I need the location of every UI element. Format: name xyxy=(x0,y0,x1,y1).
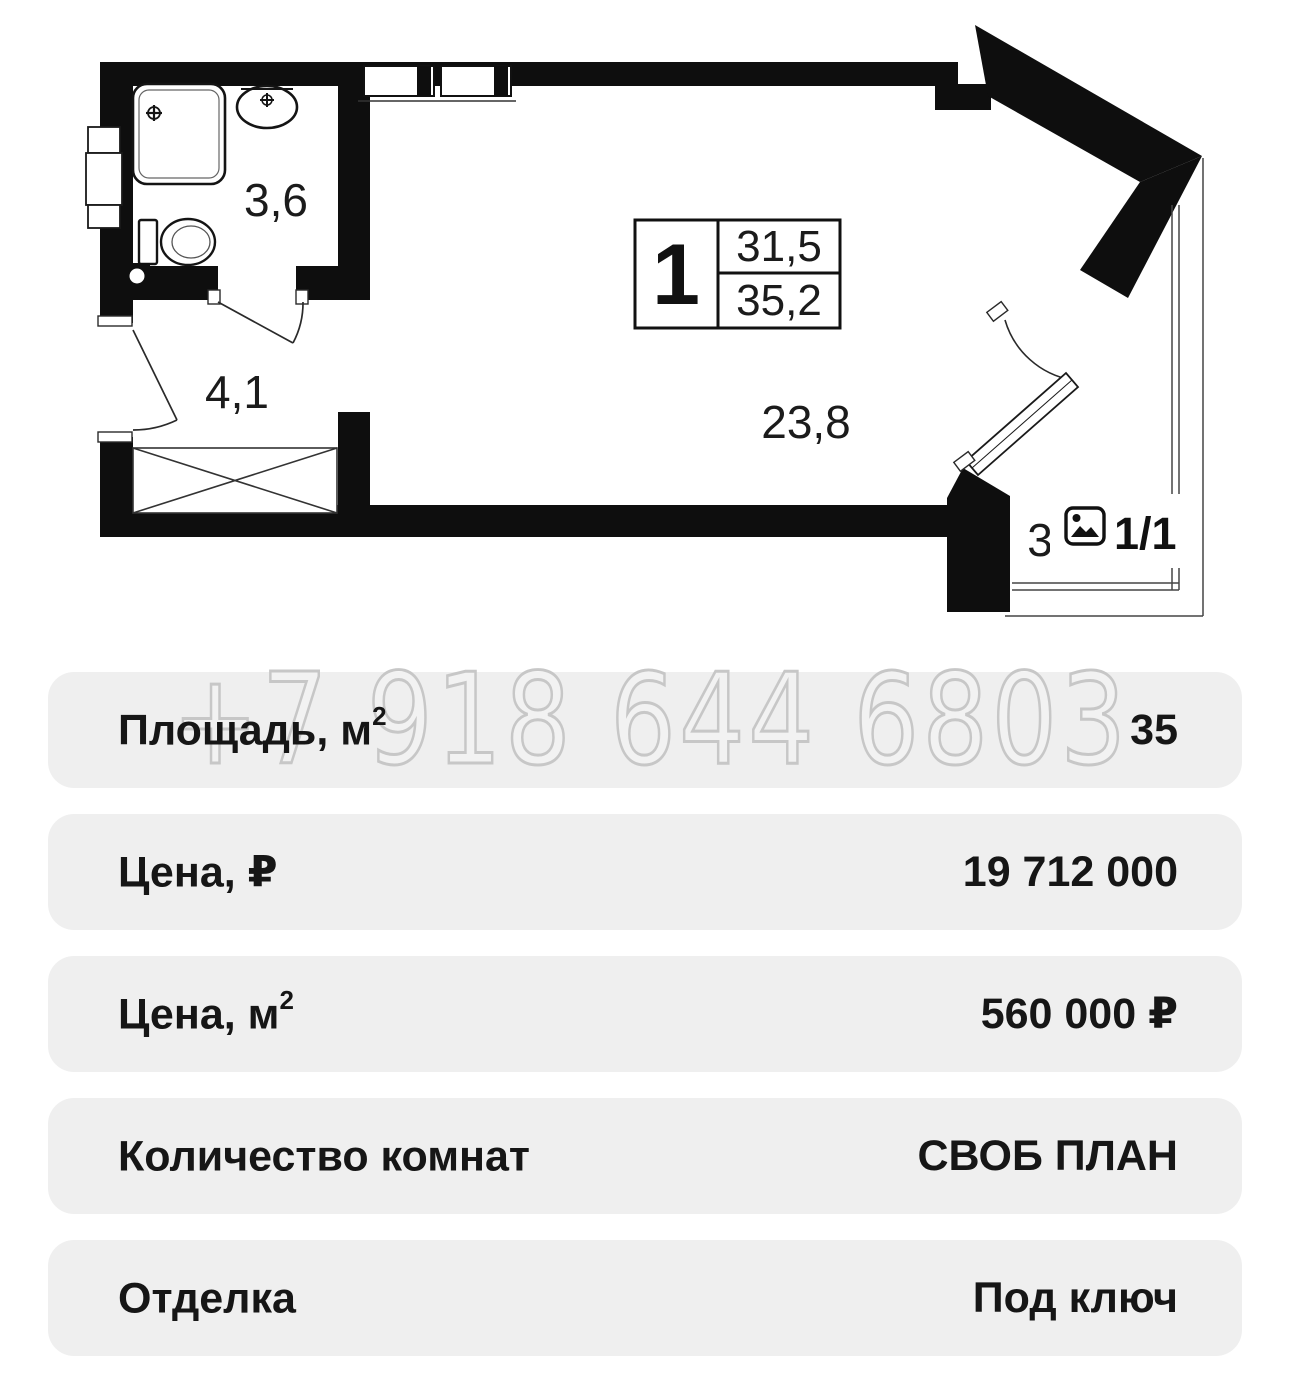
superscript: 2 xyxy=(372,701,386,731)
balcony-door xyxy=(954,302,1078,475)
floor-plan-drawing: 3,6 4,1 23,8 3 1 31,5 35,2 1/1 xyxy=(0,0,1290,655)
superscript: 2 xyxy=(279,985,293,1015)
legend-total-area: 35,2 xyxy=(736,276,822,325)
living-area-label: 23,8 xyxy=(761,396,851,448)
listing-card: 3,6 4,1 23,8 3 1 31,5 35,2 1/1 +7 918 64 xyxy=(0,0,1290,1376)
spec-row-price-per-m2: Цена, м2 560 000 ₽ xyxy=(48,956,1242,1072)
row-value: 35 xyxy=(1130,706,1178,755)
row-label: Площадь, м2 xyxy=(118,705,387,755)
row-value: 560 000 ₽ xyxy=(981,989,1178,1039)
legend-living-area: 31,5 xyxy=(736,222,822,271)
photo-counter-badge[interactable]: 1/1 xyxy=(1050,494,1202,568)
row-label: Цена, ₽ xyxy=(118,847,278,897)
row-value: Под ключ xyxy=(973,1274,1178,1323)
spec-row-finishing: Отделка Под ключ xyxy=(48,1240,1242,1356)
row-label: Цена, м2 xyxy=(118,989,294,1039)
floor-drain-icon xyxy=(124,263,150,289)
spec-row-price: Цена, ₽ 19 712 000 xyxy=(48,814,1242,930)
legend-rooms-count: 1 xyxy=(652,227,700,323)
utility-shaft xyxy=(86,127,122,228)
hallway-area-label: 4,1 xyxy=(205,366,269,418)
row-label: Отделка xyxy=(118,1273,296,1323)
spec-row-rooms: Количество комнат СВОБ ПЛАН xyxy=(48,1098,1242,1214)
toilet-icon xyxy=(139,219,215,265)
wardrobe xyxy=(133,448,337,513)
shower-tray-icon xyxy=(133,84,225,184)
spec-row-area: Площадь, м2 35 xyxy=(48,672,1242,788)
photo-counter-text: 1/1 xyxy=(1114,508,1177,559)
bathroom-area-label: 3,6 xyxy=(244,174,308,226)
balcony-partial-label: 3 xyxy=(1027,514,1053,566)
row-label: Количество комнат xyxy=(118,1131,530,1181)
bathroom-door xyxy=(208,290,308,343)
plan-legend: 1 31,5 35,2 xyxy=(635,220,840,328)
entry-door xyxy=(98,316,177,442)
floor-plan: 3,6 4,1 23,8 3 1 31,5 35,2 1/1 xyxy=(0,0,1290,655)
sink-icon xyxy=(237,86,297,128)
row-value: 19 712 000 xyxy=(963,848,1178,897)
row-value: СВОБ ПЛАН xyxy=(917,1132,1178,1181)
